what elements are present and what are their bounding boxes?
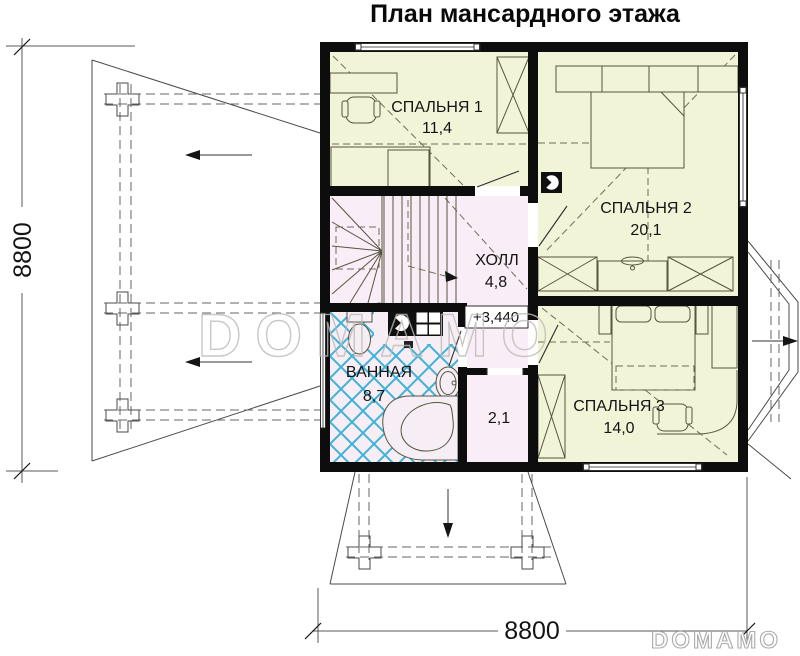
chair-icon: [342, 97, 380, 123]
nightstand-icon: [696, 303, 708, 334]
room-label-bedroom3: СПАЛЬНЯ 3: [573, 398, 665, 415]
door-opening: [475, 186, 520, 196]
watermark-center: DOMAMO: [198, 302, 562, 369]
dimension-bottom-value: 8800: [504, 617, 560, 645]
wardrobe-icon: [497, 57, 529, 133]
post-icon: [348, 536, 381, 569]
room-area-hall: 4,8: [485, 274, 507, 291]
bay-window-roof: [748, 241, 798, 479]
dimension-bottom: 8800: [305, 477, 755, 645]
roof-slope-arrow-right: [752, 336, 798, 346]
post-icon: [511, 536, 544, 569]
double-bed-icon: [612, 302, 695, 390]
room-area-bedroom2: 20,1: [630, 222, 661, 239]
bed-icon: [331, 147, 430, 191]
wardrobe-icon: [538, 375, 565, 458]
room-label-bedroom1: СПАЛЬНЯ 1: [391, 99, 483, 116]
floor-plan-page: План мансардного этажа: [0, 0, 800, 656]
room-label-bedroom2: СПАЛЬНЯ 2: [600, 200, 692, 217]
wardrobe-icon: [668, 257, 733, 291]
nightstand-icon: [599, 303, 611, 334]
roof-slope-arrow-down: [443, 489, 453, 538]
floor-plan-drawing: План мансардного этажа: [0, 0, 800, 656]
room-area-bathroom: 8,7: [363, 388, 385, 405]
cased-opening: [487, 368, 523, 375]
post-icon: [106, 399, 139, 432]
window: [740, 87, 747, 207]
dimension-left-value: 8800: [9, 222, 37, 278]
headboard-shelf-icon: [556, 66, 738, 92]
double-bed-icon: [591, 92, 684, 168]
chimney-icon: [541, 172, 562, 193]
brand-logo: DOMAMO: [651, 627, 781, 654]
wardrobe-icon: [538, 257, 597, 291]
roof-slope-arrow-left-1: [185, 150, 252, 160]
post-icon: [106, 292, 139, 325]
page-title: План мансардного этажа: [370, 0, 681, 28]
dresser-icon: [598, 257, 667, 291]
room-area-bedroom3: 14,0: [603, 420, 634, 437]
porch-roof: [330, 472, 566, 584]
window: [583, 464, 702, 471]
post-icon: [106, 83, 139, 116]
room-label-hall: ХОЛЛ: [475, 252, 518, 269]
left-roof-overhang: [92, 60, 320, 461]
desk-icon: [330, 73, 397, 93]
room-area-bedroom1: 11,4: [422, 120, 452, 137]
door-opening: [528, 203, 538, 247]
window: [355, 44, 480, 51]
washbasin-icon: [436, 367, 460, 399]
room-area-closet: 2,1: [488, 410, 510, 427]
cabinet-icon: [712, 303, 737, 368]
